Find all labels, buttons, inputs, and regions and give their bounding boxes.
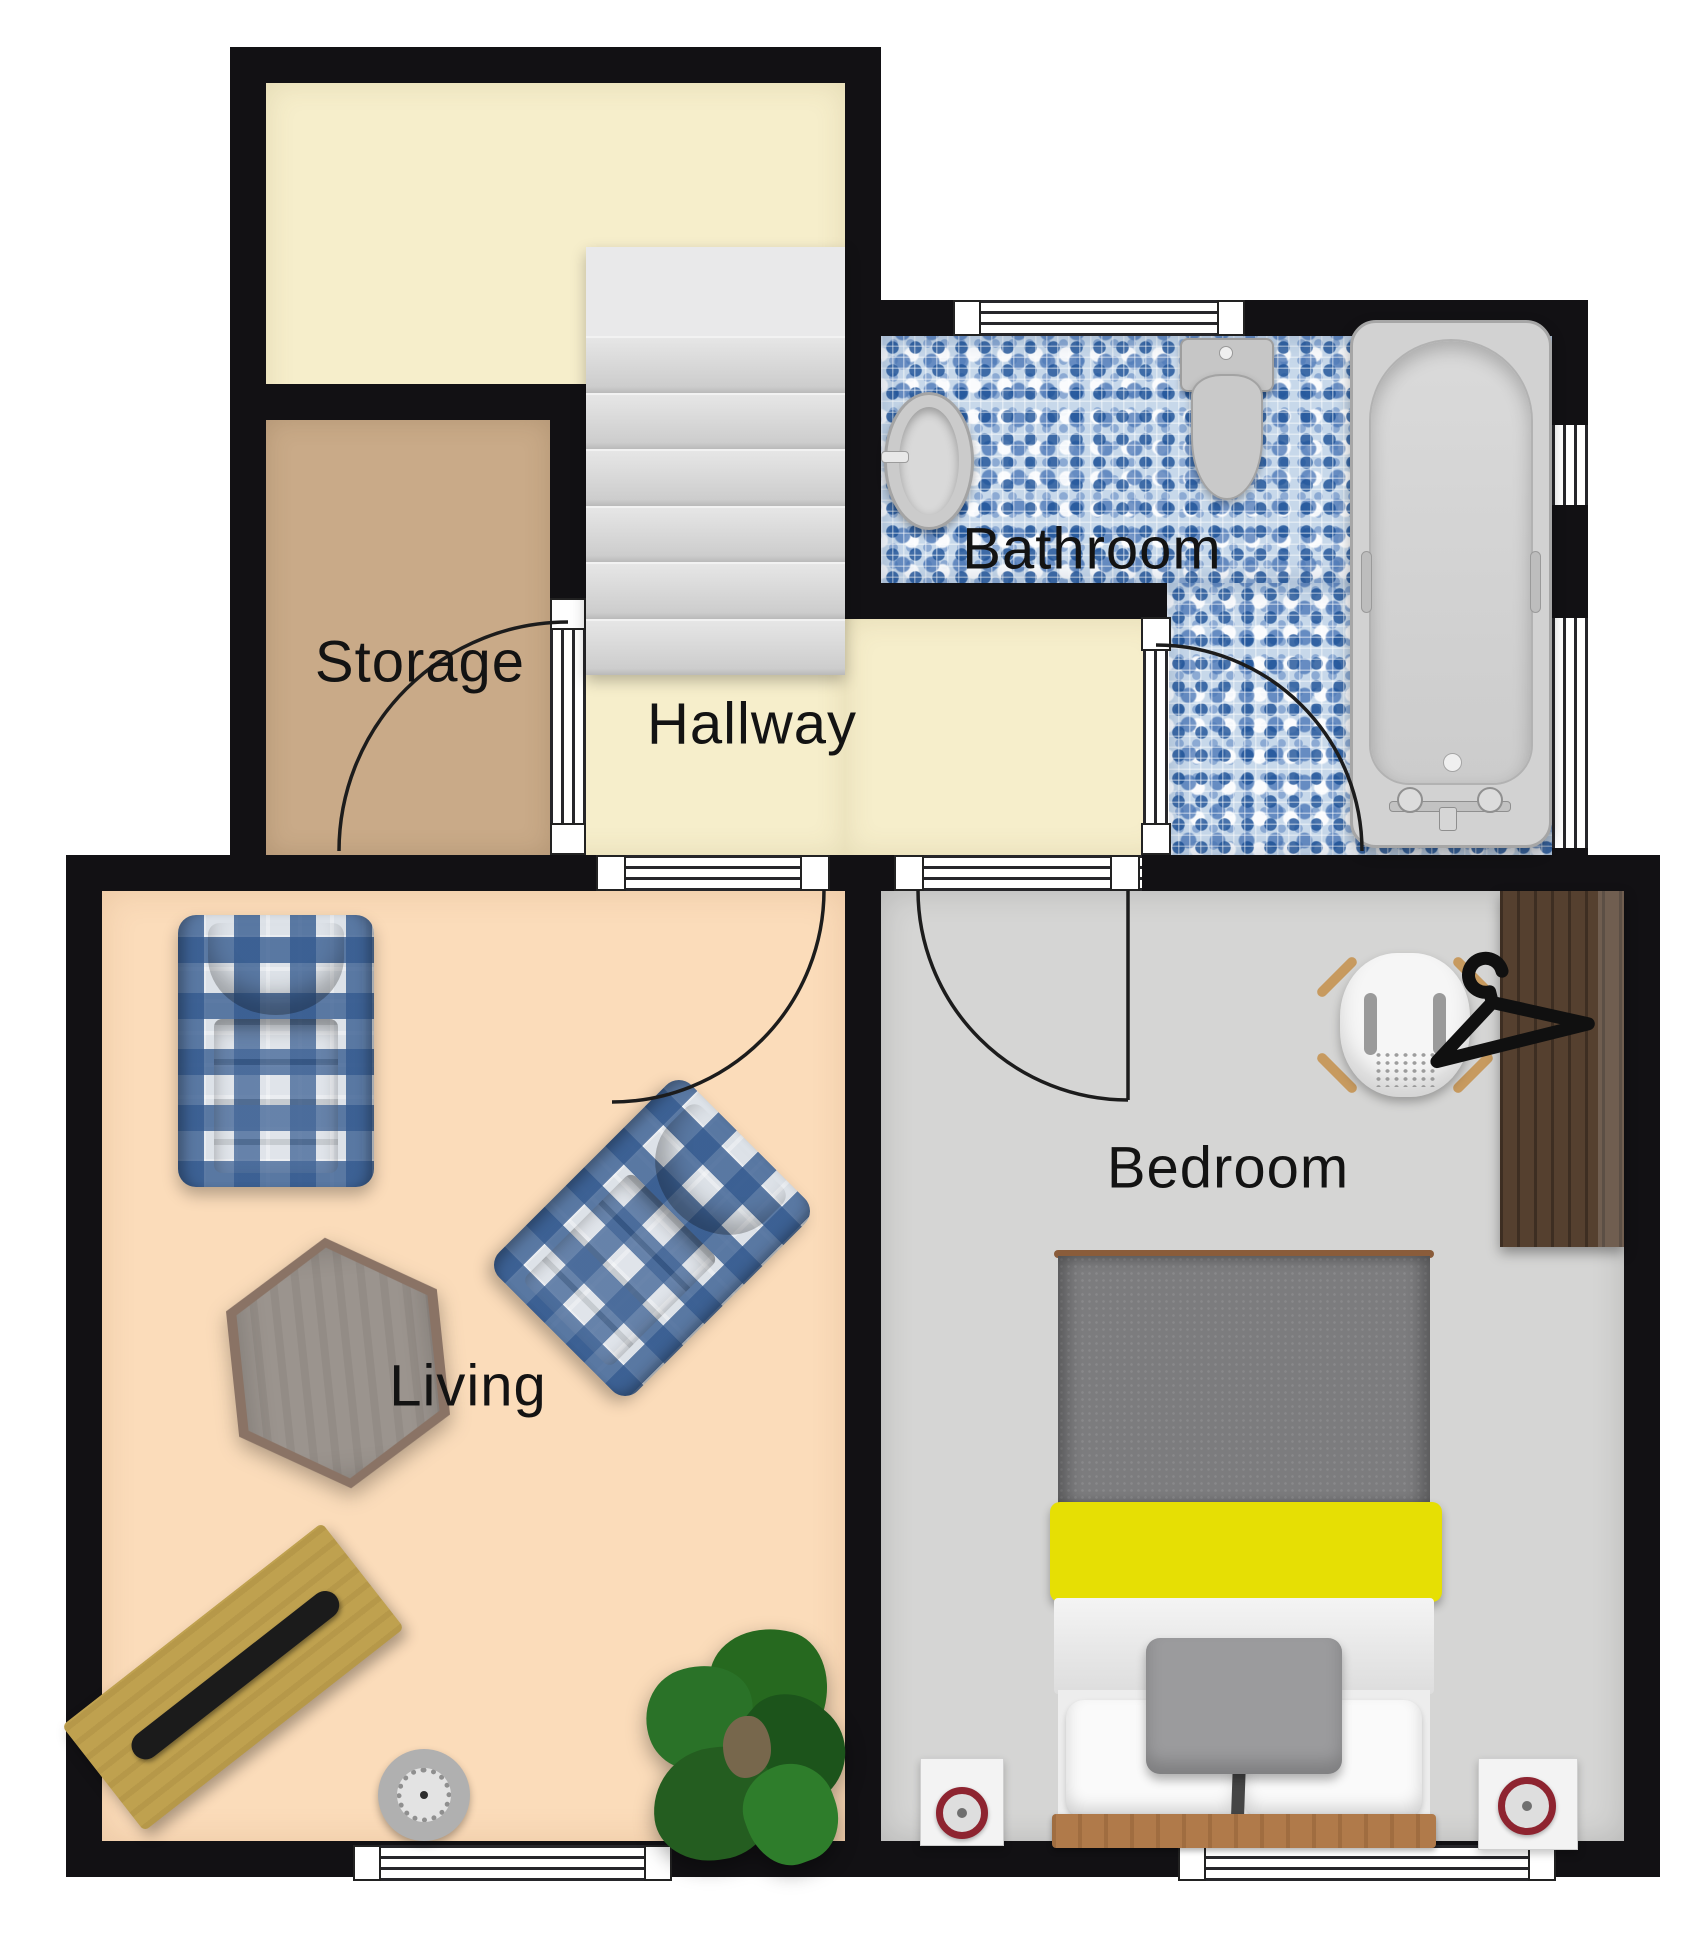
bedroom-door-arc [918,890,1128,1100]
storage-label: Storage [315,629,525,696]
bedroom-label: Bedroom [1107,1135,1349,1202]
living-door-arc [612,890,824,1102]
door-swing-arcs [0,0,1708,1952]
living-label: Living [389,1353,547,1420]
bathroom-door-arc [1156,645,1362,851]
hallway-label: Hallway [647,691,857,758]
bathroom-label: Bathroom [962,516,1221,583]
floor-plan: Storage Hallway Bathroom Living Bedroom [0,0,1708,1952]
